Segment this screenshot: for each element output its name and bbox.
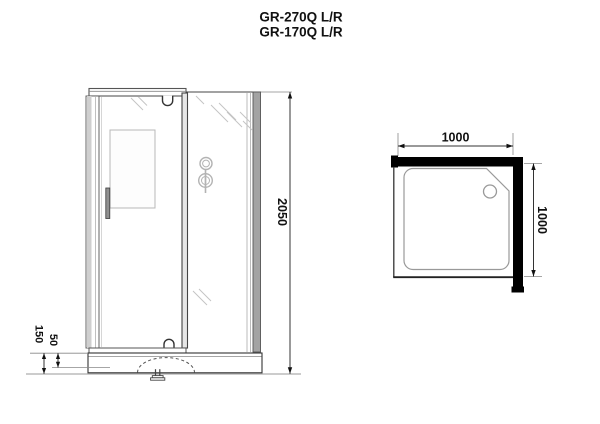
header-bar bbox=[89, 89, 186, 97]
wall-top bbox=[392, 157, 523, 167]
top-pivot-hook-icon bbox=[163, 96, 173, 106]
width-label: 1000 bbox=[442, 131, 470, 145]
drawing-canvas: GR-270Q L/R GR-170Q L/R bbox=[0, 0, 600, 424]
dimension-depth: 1000 bbox=[524, 164, 549, 277]
right-frame-profile bbox=[253, 92, 261, 352]
door-mirror bbox=[110, 130, 155, 208]
left-frame-profile bbox=[86, 96, 99, 348]
tray-inner-outline bbox=[404, 169, 509, 270]
front-view: 2050 150 50 bbox=[26, 89, 301, 381]
tray-height-label: 150 bbox=[33, 325, 45, 343]
model-number-line2: GR-170Q L/R bbox=[259, 25, 343, 40]
depth-label: 1000 bbox=[535, 206, 549, 234]
wall-right bbox=[513, 157, 523, 287]
drain-hole-icon bbox=[484, 185, 497, 198]
model-number-line1: GR-270Q L/R bbox=[259, 10, 343, 25]
top-view: 1000 1000 bbox=[391, 131, 549, 293]
door-handle-bar bbox=[106, 188, 110, 219]
bottom-rail bbox=[89, 348, 186, 353]
shower-dial-icon bbox=[200, 158, 212, 170]
dimension-overall-height: 2050 bbox=[275, 92, 292, 374]
mixer-controls bbox=[199, 158, 213, 194]
wall-end-cap-bottom bbox=[512, 287, 525, 293]
dimension-width: 1000 bbox=[398, 131, 513, 157]
tray-rim-height-label: 50 bbox=[47, 334, 59, 346]
title-block: GR-270Q L/R GR-170Q L/R bbox=[259, 10, 343, 40]
shower-tray bbox=[88, 353, 262, 380]
center-divider-profile bbox=[182, 93, 188, 348]
overall-height-label: 2050 bbox=[275, 198, 289, 226]
